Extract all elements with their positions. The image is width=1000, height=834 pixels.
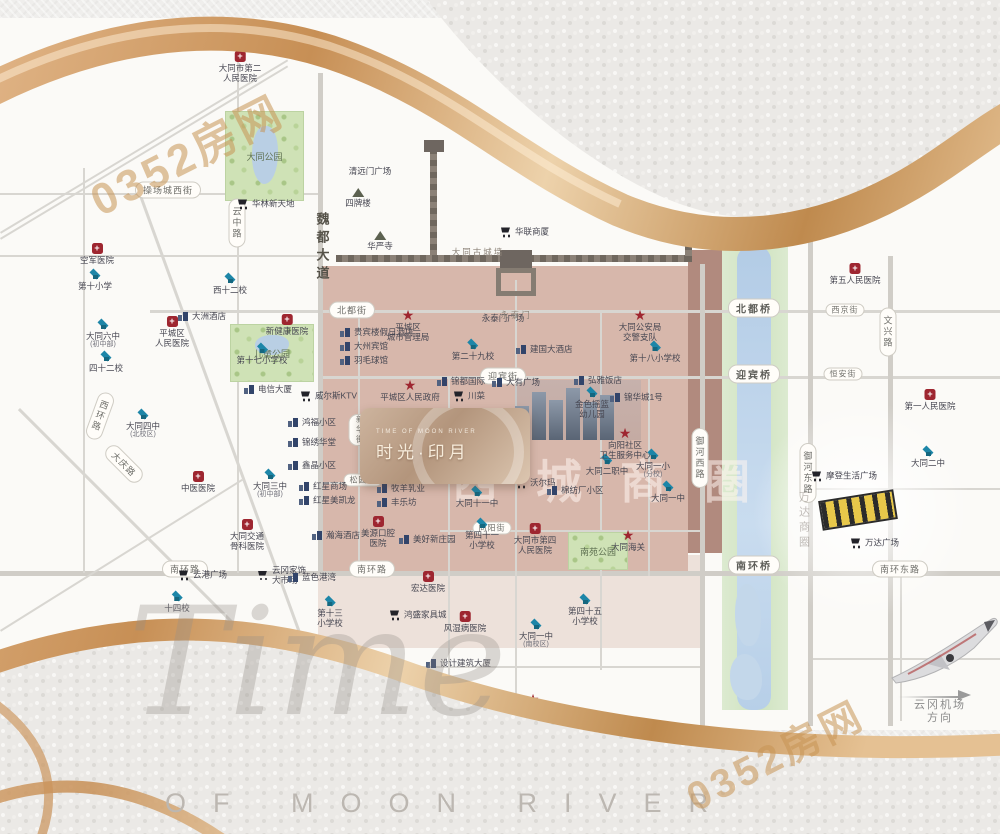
- road-label: 南环桥: [728, 556, 780, 575]
- poi-label: 空军医院: [80, 255, 114, 265]
- temple-icon: [374, 231, 386, 240]
- poi-label: 锦华城1号: [624, 392, 663, 402]
- hospital-icon: [91, 243, 102, 254]
- poi-label: 大同三中: [253, 481, 287, 491]
- building-icon: [516, 344, 527, 353]
- poi-label: 大同公安局 交警支队: [619, 322, 662, 342]
- building-icon: [299, 495, 310, 504]
- poi-cart: 万达广场: [849, 538, 899, 549]
- building-icon: [610, 392, 621, 401]
- building-icon: [288, 460, 299, 469]
- poi-building: 红星商场: [299, 481, 347, 491]
- poi-building: 大洲酒店: [178, 311, 226, 321]
- poi-label: 第一人民医院: [904, 401, 955, 411]
- cart-icon: [236, 199, 249, 210]
- school-icon: [470, 486, 484, 497]
- poi-building: 牧羊乳业: [377, 483, 425, 493]
- poi-label: 大同二职中: [586, 466, 629, 476]
- temple-icon: [352, 188, 364, 197]
- poi-label: 第四十一 小学校: [465, 530, 499, 550]
- poi-cart: 川菜: [452, 391, 485, 402]
- school-icon: [661, 481, 675, 492]
- poi-label: 牧羊乳业: [391, 483, 425, 493]
- poi-building: 电信大厦: [244, 384, 292, 394]
- school-icon: [99, 351, 113, 362]
- school-icon: [136, 409, 150, 420]
- poi-label: 棉纺厂小区: [561, 485, 604, 495]
- poi-building: 弘雅饭店: [574, 375, 622, 385]
- poi-label: 摩登生活广场: [826, 471, 877, 481]
- city-gate-north: [424, 140, 444, 152]
- cart-icon: [299, 391, 312, 402]
- building-icon: [288, 417, 299, 426]
- star-icon: [812, 195, 825, 208]
- poi-star: 平城区人民政府: [380, 379, 440, 402]
- school-icon: [475, 518, 489, 529]
- airport-direction-arrow: [898, 696, 960, 698]
- building-icon: [437, 376, 448, 385]
- school-icon: [223, 273, 237, 284]
- poi-label: 西十二校: [213, 285, 247, 295]
- hospital-icon: [281, 314, 292, 325]
- building-icon: [399, 534, 410, 543]
- poi-label: 大同十一中: [456, 498, 499, 508]
- poi-label: 大同海关: [611, 542, 645, 552]
- poi-label: 瀚海酒店: [326, 530, 360, 540]
- poi-star: 大同市人民 检察院: [797, 195, 840, 228]
- city-wall: [685, 225, 800, 232]
- poi-star: 大同海关: [611, 529, 645, 552]
- city-gate-barbican: [496, 268, 536, 296]
- hospital-icon: [529, 523, 540, 534]
- poi-label: 红星商场: [313, 481, 347, 491]
- poi-label: 云冈机场方向: [910, 699, 970, 725]
- poi-label: 锦绣华堂: [302, 437, 336, 447]
- poi-label: 贵宾楼假日酒店: [354, 327, 414, 337]
- poi-label: 大同六中: [86, 331, 120, 341]
- poi-label: 鑫晶小区: [302, 460, 336, 470]
- school-icon: [585, 387, 599, 398]
- poi-building: 锦绣华堂: [288, 437, 336, 447]
- poi-label: 永泰门: [500, 310, 532, 320]
- building-icon: [340, 341, 351, 350]
- poi-label: 丰乐坊: [391, 497, 417, 507]
- poi-school: 第二十九校: [452, 339, 495, 361]
- road: [83, 168, 85, 573]
- poi-star: 平城区 城市管理局: [387, 309, 430, 342]
- poi-label: 大有广场: [506, 377, 540, 387]
- road-label: 南环东路: [872, 561, 928, 578]
- poi-label: 平城区 人民医院: [155, 328, 189, 348]
- poi-label: 第四十五 小学校: [568, 606, 602, 626]
- poi-school: 大同十一中: [456, 486, 499, 508]
- city-wall: [685, 228, 692, 262]
- poi-label: 平城区人民政府: [380, 392, 440, 402]
- road-label: 御河西路: [692, 428, 709, 488]
- poi-hospital: 第五人民医院: [829, 263, 880, 285]
- road-label: 南环路: [349, 561, 395, 578]
- poi-building: 大州宾馆: [340, 341, 388, 351]
- poi-school: 大同六中(初中部): [86, 319, 120, 349]
- airport-direction-arrowhead: [958, 690, 971, 700]
- poi-building: 红星美凯龙: [299, 495, 356, 505]
- poi-sublabel: (初中部): [257, 491, 283, 499]
- poi-school: 金色摇篮 幼儿园: [575, 387, 609, 419]
- poi-cart: 威尔斯KTV: [299, 391, 357, 402]
- city-gate-yongtaimen: [500, 250, 532, 268]
- poi-sublabel: (分校): [644, 471, 663, 479]
- cart-icon: [499, 227, 512, 238]
- poi-text: 大同古城墙: [452, 247, 505, 257]
- poi-label: 大同市人民 检察院: [797, 208, 840, 228]
- poi-label: 新健康医院: [266, 326, 309, 336]
- school-icon: [88, 269, 102, 280]
- poi-label: 大洲酒店: [192, 311, 226, 321]
- road-label: 文兴路: [880, 308, 897, 357]
- poi-label: 中医医院: [181, 483, 215, 493]
- poi-label: 羽毛球馆: [354, 355, 388, 365]
- poi-label: 大同一小: [636, 461, 670, 471]
- road-label: 西京街: [826, 304, 865, 317]
- poi-hospital: 大同交通 骨科医院: [230, 519, 264, 551]
- poi-hospital: 中医医院: [181, 471, 215, 493]
- building-icon: [178, 311, 189, 320]
- poi-school: 大同一中(南校区): [519, 619, 553, 649]
- road: [0, 255, 318, 257]
- school-icon: [466, 339, 480, 350]
- poi-label: 大同二中: [911, 458, 945, 468]
- poi-label: 第十七小学校: [236, 355, 287, 365]
- poi-text: 云冈机场方向: [910, 699, 970, 725]
- poi-building: 建国大酒店: [516, 344, 573, 354]
- poi-school: 西十二校: [213, 273, 247, 295]
- poi-label: 万达广场: [865, 538, 899, 548]
- poi-label: 弘雅饭店: [588, 375, 622, 385]
- poi-text: 万达商圈: [797, 491, 810, 551]
- poi-school: 第十小学: [78, 269, 112, 291]
- poi-sublabel: (北校区): [130, 431, 156, 439]
- poi-label: 第二十九校: [452, 351, 495, 361]
- road-label: 魏都大道: [312, 205, 333, 291]
- project-logo: TIME OF MOON RIVER 时光·印月: [360, 408, 530, 484]
- school-icon: [96, 319, 110, 330]
- building-icon: [340, 327, 351, 336]
- building-icon: [299, 481, 310, 490]
- poi-building: 瀚海酒店: [312, 530, 360, 540]
- river-pond: [730, 654, 762, 700]
- building-icon: [574, 375, 585, 384]
- poi-hospital: 大同市第二 人民医院: [219, 51, 262, 83]
- poi-school: 第十七小学校: [236, 343, 287, 365]
- hospital-icon: [234, 51, 245, 62]
- poi-label: 向阳社区 卫生服务中心: [599, 440, 650, 460]
- poi-label: 万达商圈: [797, 491, 810, 551]
- poster-canvas: 西城商圈 TIME OF MOON RIVER 时光·印月 大同: [0, 0, 1000, 834]
- road-label: 北都街: [329, 302, 375, 319]
- school-icon: [921, 446, 935, 457]
- cart-icon: [452, 391, 465, 402]
- building-icon: [340, 355, 351, 364]
- star-icon: [402, 309, 415, 322]
- road-label: 北都桥: [728, 299, 780, 318]
- poi-school: 大同三中(初中部): [253, 469, 287, 499]
- poi-building: 美好新庄园: [399, 534, 456, 544]
- poi-label: 大同一中: [519, 631, 553, 641]
- poi-cart: 摩登生活广场: [810, 471, 877, 482]
- poi-label: 美好新庄园: [413, 534, 456, 544]
- hospital-icon: [241, 519, 252, 530]
- poi-building: 丰乐坊: [377, 497, 417, 507]
- poi-school: 第四十一 小学校: [465, 518, 499, 550]
- poi-label: 大同一中: [651, 493, 685, 503]
- poi-label: 威尔斯KTV: [315, 391, 357, 401]
- poi-star: 文华派出所: [512, 693, 555, 716]
- poi-building: 贵宾楼假日酒店: [340, 327, 414, 337]
- poi-label: 大州宾馆: [354, 341, 388, 351]
- road-label: 恒安街: [824, 368, 863, 381]
- poi-school: 大同四中(北校区): [126, 409, 160, 439]
- hospital-icon: [166, 316, 177, 327]
- hospital-icon: [192, 471, 203, 482]
- road-label: 西环路: [84, 390, 117, 442]
- poi-label: 第十小学: [78, 281, 112, 291]
- building-icon: [377, 483, 388, 492]
- poi-building: 棉纺厂小区: [547, 485, 604, 495]
- poi-label: 华严寺: [367, 241, 393, 251]
- cart-icon: [810, 471, 823, 482]
- school-icon: [529, 619, 543, 630]
- road-label: 迎宾桥: [728, 365, 780, 384]
- hospital-icon: [849, 263, 860, 274]
- tower: [549, 400, 563, 440]
- poi-hospital: 美源口腔 医院: [361, 516, 395, 548]
- poi-label: 第十八小学校: [629, 353, 680, 363]
- poi-star: 大同公安局 交警支队: [619, 309, 662, 342]
- poi-label: 四牌楼: [345, 198, 371, 208]
- brand-script-time: Time: [128, 588, 507, 738]
- poi-label: 锦都国际: [451, 376, 485, 386]
- poi-cart: 华林新天地: [236, 199, 295, 210]
- poi-label: 大同古城墙: [452, 247, 505, 257]
- poi-label: 大同市第四 人民医院: [514, 535, 557, 555]
- building-icon: [312, 530, 323, 539]
- poi-label: 金色摇篮 幼儿园: [575, 399, 609, 419]
- poi-temple: 四牌楼: [345, 188, 371, 208]
- school-icon: [255, 343, 269, 354]
- star-icon: [634, 309, 647, 322]
- poi-school: 大同二中: [911, 446, 945, 468]
- hospital-icon: [372, 516, 383, 527]
- hospital-icon: [924, 389, 935, 400]
- school-icon: [648, 341, 662, 352]
- poi-building: 大有广场: [492, 377, 540, 387]
- star-icon: [622, 529, 635, 542]
- poi-hospital: 第一人民医院: [904, 389, 955, 411]
- poi-text: 永泰门: [500, 310, 532, 320]
- poi-school: 第四十五 小学校: [568, 594, 602, 626]
- building-icon: [547, 485, 558, 494]
- poi-cart: 华联商厦: [499, 227, 549, 238]
- poi-hospital: 新健康医院: [266, 314, 309, 336]
- poi-label: 大同四中: [126, 421, 160, 431]
- moon-ring-icon: [412, 408, 524, 484]
- poi-label: 川菜: [468, 391, 485, 401]
- city-wall: [430, 148, 437, 262]
- airplane-icon: [888, 612, 1000, 692]
- poi-label: 鸿福小区: [302, 417, 336, 427]
- poi-sublabel: (南校区): [523, 641, 549, 649]
- school-icon: [578, 594, 592, 605]
- tower: [532, 392, 546, 440]
- poi-building: 锦都国际: [437, 376, 485, 386]
- poi-building: 羽毛球馆: [340, 355, 388, 365]
- building-icon: [492, 377, 503, 386]
- poi-label: 文华派出所: [512, 706, 555, 716]
- poi-label: 建国大酒店: [530, 344, 573, 354]
- poi-sublabel: (初中部): [90, 341, 116, 349]
- poi-label: 华林新天地: [252, 199, 295, 209]
- road-label: 大庆路: [102, 442, 147, 487]
- building-icon: [244, 384, 255, 393]
- road: [150, 310, 1000, 313]
- poi-building: 鑫晶小区: [288, 460, 336, 470]
- poi-label: 红星美凯龙: [313, 495, 356, 505]
- poi-hospital: 大同市第四 人民医院: [514, 523, 557, 555]
- brand-line-of-moon-river: OF MOON RIVER: [165, 788, 735, 819]
- poi-label: 清远门广场: [349, 166, 392, 176]
- star-icon: [404, 379, 417, 392]
- school-icon: [263, 469, 277, 480]
- poi-label: 大同交通 骨科医院: [230, 531, 264, 551]
- building-icon: [288, 437, 299, 446]
- poi-label: 电信大厦: [258, 384, 292, 394]
- poi-hospital: 空军医院: [80, 243, 114, 265]
- star-icon: [619, 427, 632, 440]
- poi-label: 第五人民医院: [829, 275, 880, 285]
- poi-label: 美源口腔 医院: [361, 528, 395, 548]
- cart-icon: [849, 538, 862, 549]
- poi-label: 华联商厦: [515, 227, 549, 237]
- poi-school: 四十二校: [89, 351, 123, 373]
- poi-building: 鸿福小区: [288, 417, 336, 427]
- poi-label: 四十二校: [89, 363, 123, 373]
- poi-temple: 华严寺: [367, 231, 393, 251]
- building-icon: [377, 497, 388, 506]
- star-icon: [527, 693, 540, 706]
- poi-building: 锦华城1号: [610, 392, 663, 402]
- poi-school: 第十八小学校: [629, 341, 680, 363]
- poi-school: 大同一中: [651, 481, 685, 503]
- poi-star: 向阳社区 卫生服务中心: [599, 427, 650, 460]
- poi-text: 清远门广场: [349, 166, 392, 176]
